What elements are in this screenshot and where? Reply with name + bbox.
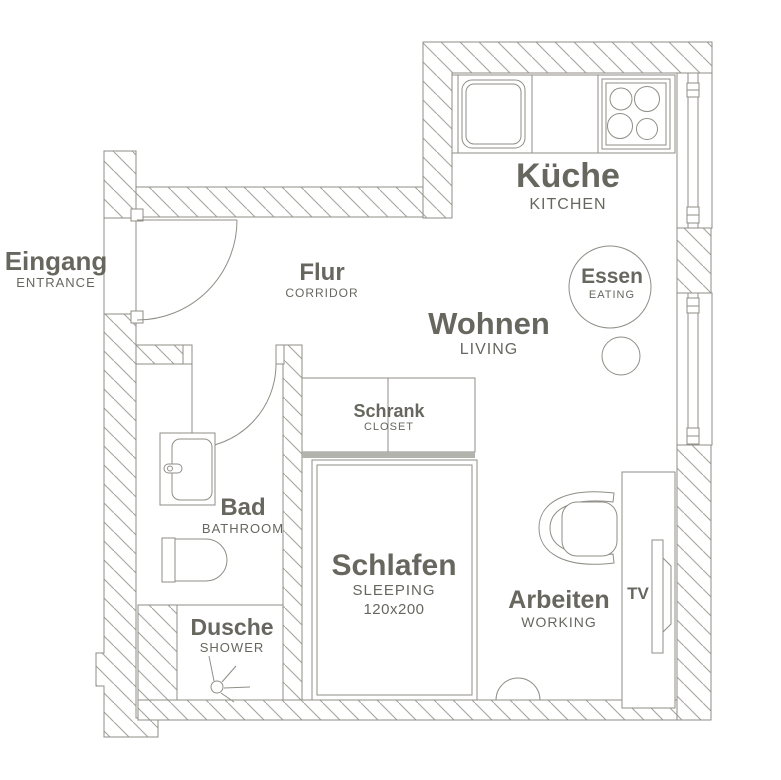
bathroom-bedroom-wall bbox=[283, 345, 302, 700]
desk-chair bbox=[539, 492, 617, 565]
door-frame bbox=[131, 311, 143, 323]
window-top bbox=[677, 73, 712, 228]
pouf bbox=[496, 678, 540, 700]
bed bbox=[312, 460, 477, 700]
chair-seat bbox=[562, 502, 617, 556]
closet bbox=[302, 378, 475, 458]
toilet bbox=[162, 538, 227, 582]
door-frame bbox=[276, 345, 284, 364]
door-opening bbox=[104, 218, 136, 314]
washbasin bbox=[160, 433, 215, 505]
tv-cabinet bbox=[622, 472, 675, 708]
tv-screen bbox=[663, 558, 671, 632]
entry-wall-upper bbox=[104, 151, 136, 218]
window-pier bbox=[677, 228, 711, 293]
door-swing-arc bbox=[137, 220, 237, 320]
door-frame bbox=[183, 345, 192, 364]
shower-tray bbox=[177, 605, 283, 700]
right-wall-lower bbox=[677, 445, 711, 720]
closet-front-bar bbox=[302, 452, 475, 458]
floor-plan-drawing bbox=[0, 0, 781, 780]
window-bottom bbox=[677, 293, 712, 445]
dining-table bbox=[569, 246, 651, 328]
stove bbox=[602, 79, 670, 149]
tv-board bbox=[652, 540, 663, 653]
shower bbox=[177, 605, 283, 702]
floor-plan: Eingang ENTRANCE Flur CORRIDOR Küche KIT… bbox=[0, 0, 781, 780]
stool bbox=[602, 337, 640, 375]
bathroom-top-wall bbox=[136, 345, 183, 364]
shower-wall-block bbox=[138, 605, 177, 700]
kitchen-sink bbox=[462, 80, 525, 148]
door-frame bbox=[131, 209, 143, 221]
entrance-door bbox=[104, 209, 237, 323]
corridor-top-wall bbox=[136, 187, 423, 217]
shower-head-icon bbox=[211, 681, 223, 693]
